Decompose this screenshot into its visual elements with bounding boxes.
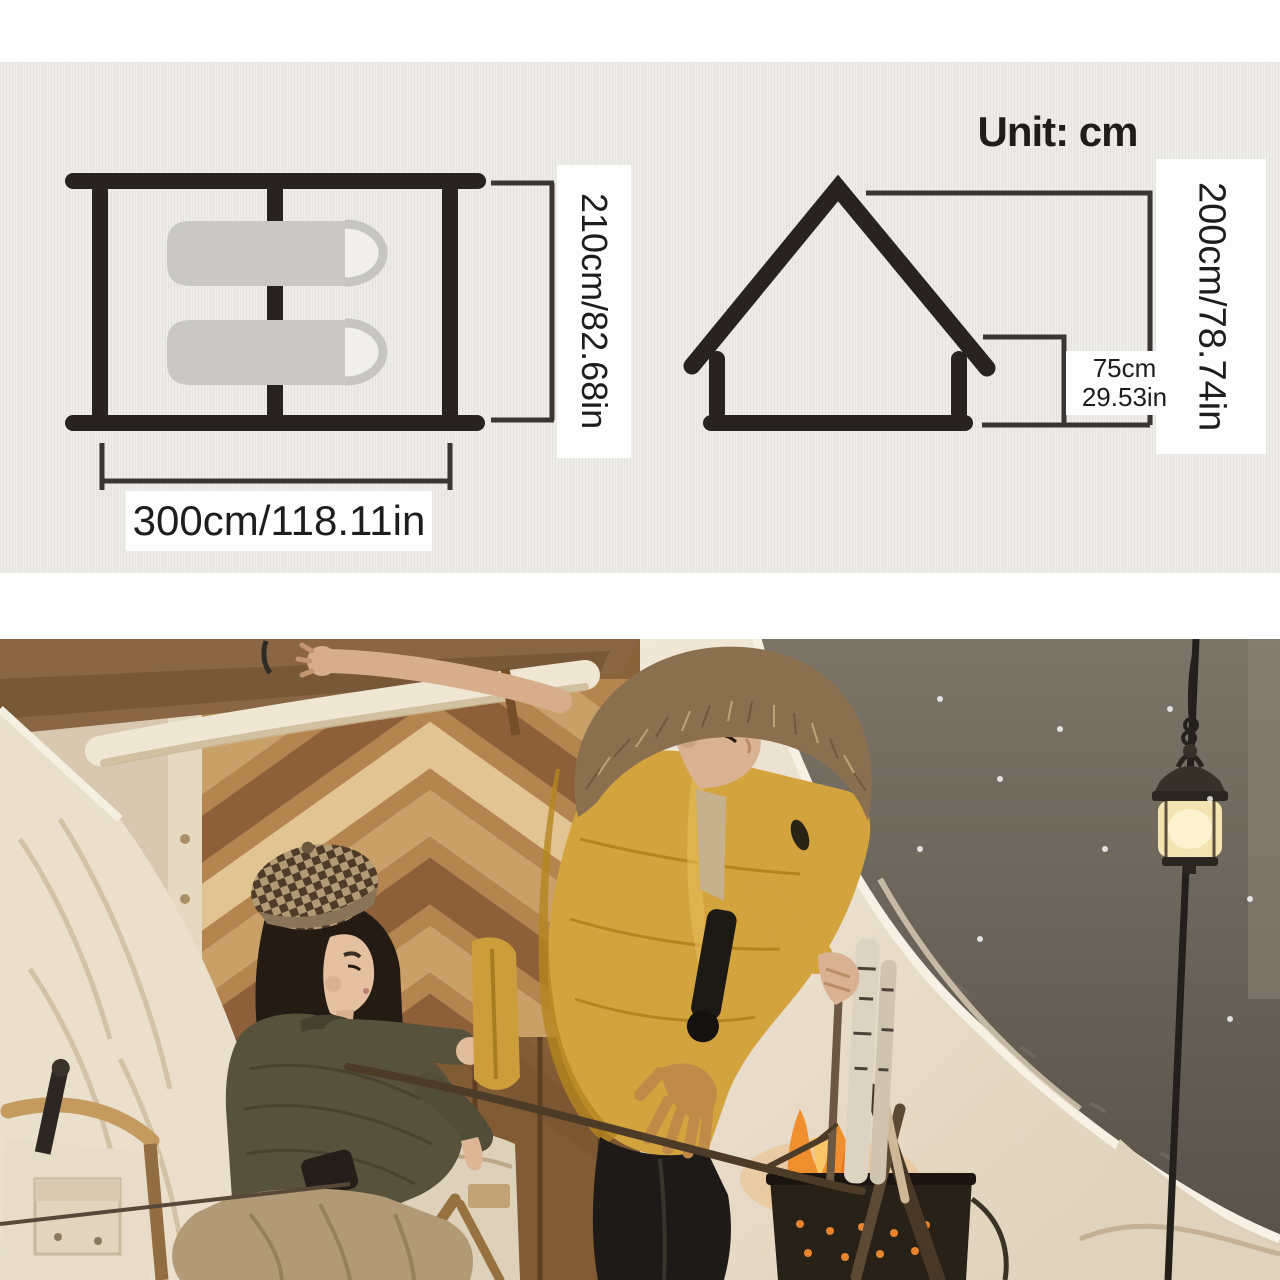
unit-label: Unit: cm bbox=[950, 102, 1165, 162]
sleeping-pad-2 bbox=[167, 320, 383, 385]
width-dimension-label: 300cm/118.11in bbox=[126, 491, 432, 551]
product-size-image: Unit: cm 210cm/82.68in 200cm/78.74in 300… bbox=[0, 0, 1280, 1280]
campsite-photo bbox=[0, 639, 1280, 1280]
sleeping-pad-1 bbox=[167, 221, 383, 286]
wall-height-cm: 75cm bbox=[1093, 354, 1157, 383]
depth-dimension-label: 210cm/82.68in bbox=[557, 165, 631, 458]
tent-side-view-diagram bbox=[692, 188, 987, 423]
tent-top-view-diagram bbox=[73, 181, 478, 423]
campsite-scene bbox=[0, 639, 1280, 1280]
inner-sweater bbox=[696, 789, 726, 901]
wall-height-dimension-label: 75cm 29.53in bbox=[1066, 351, 1183, 415]
wall-height-in: 29.53in bbox=[1082, 383, 1167, 412]
size-diagram-panel: Unit: cm 210cm/82.68in 200cm/78.74in 300… bbox=[0, 62, 1280, 573]
